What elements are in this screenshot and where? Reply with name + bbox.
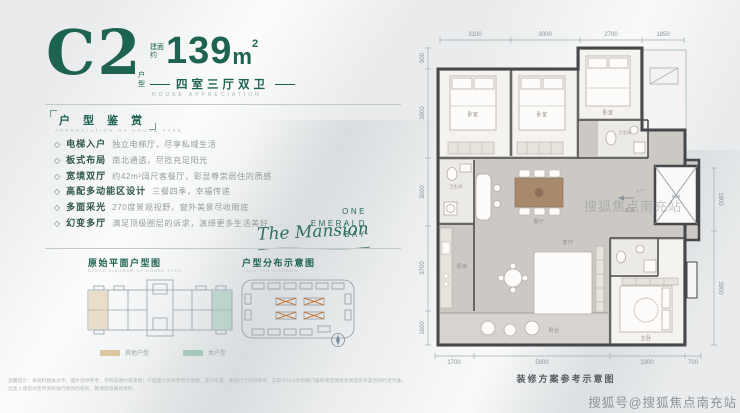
- dim-label: 1600: [420, 321, 426, 335]
- feature-item: ◇ 宽境双厅 约42m²阔尺客餐厅，彰显尊崇居住的质感: [54, 169, 404, 185]
- room-label-dining: 餐厅: [533, 218, 544, 225]
- area-value: 139: [166, 32, 232, 70]
- layout-label: 四室三厅双卫: [176, 76, 269, 92]
- feature-label: 高配多动能区设计: [66, 184, 146, 197]
- room-label-bedroom: 卧室: [536, 111, 547, 118]
- dim-label: 1850: [656, 32, 670, 38]
- distribution-diagram: [238, 274, 368, 352]
- unit-code-suffix: 户型: [138, 72, 148, 90]
- diamond-bullet-icon: ◇: [54, 156, 60, 165]
- disclaimer: 温馨提示：本资料相关文字、图片仅供参考，不构成要约或承诺；户型图为装修参考示意图…: [8, 378, 478, 393]
- room-label-bedroom: 卧室: [467, 111, 478, 118]
- diamond-bullet-icon: ◇: [54, 140, 60, 149]
- feature-desc: 满足顶级圈层的诉求，演绎更多生活美好: [112, 217, 268, 229]
- diamond-bullet-icon: ◇: [54, 219, 60, 228]
- area-prefix: 建面约: [150, 44, 166, 61]
- compass-icon: [332, 334, 345, 347]
- dim-label: 3000: [538, 32, 552, 38]
- floor-plate-subtitle: BLOCK DIAGRAM OF HOUSE TYPE: [88, 268, 182, 273]
- disclaimer-line: 出卖人保留对宣传资料进行修改的权利，敬请留意最新资料。: [8, 386, 478, 394]
- feature-item: ◇ 板式布局 南北通透，尽揽充足阳光: [54, 153, 404, 169]
- diamond-bullet-icon: ◇: [54, 203, 60, 212]
- room-label-living: 客厅: [562, 239, 573, 246]
- room-label-balcony: 阳台: [548, 327, 559, 334]
- room-label-bath: 卫生间: [449, 183, 463, 189]
- legend-swatch-this: [183, 350, 203, 356]
- feature-desc: 南北通透，尽揽充足阳光: [112, 154, 208, 166]
- room-label-master: 主卧: [640, 335, 651, 342]
- diamond-bullet-icon: ◇: [54, 187, 60, 196]
- feature-item: ◇ 高配多动能区设计 三餐四季，幸福传递: [54, 184, 404, 200]
- feature-label: 幻变多厅: [66, 216, 106, 229]
- feature-desc: 270度景观视野，窗外美景尽收眼底: [112, 201, 249, 213]
- dim-label: 1800: [717, 192, 723, 206]
- diamond-bullet-icon: ◇: [54, 172, 60, 181]
- feature-label: 板式布局: [66, 153, 106, 166]
- feature-label: 宽境双厅: [66, 169, 106, 182]
- dim-label: 1700: [447, 360, 461, 366]
- publisher-credit: 搜狐号@搜狐焦点南充站: [588, 392, 737, 411]
- feature-desc: 三餐四季，幸福传递: [152, 185, 230, 197]
- dim-label: 3100: [468, 32, 482, 38]
- room-label-kitchen: 厨房: [456, 263, 467, 270]
- dim-label: 5900: [535, 360, 549, 366]
- feature-item: ◇ 电梯入户 独立电梯厅，尽享私域生活: [54, 137, 404, 153]
- feature-desc: 独立电梯厅，尽享私域生活: [112, 138, 216, 150]
- section-subtitle: APPRECIATION OF HOUSE TYPE: [55, 128, 183, 133]
- legend-item-this: 本户型: [183, 348, 226, 357]
- feature-desc: 约42m²阔尺客餐厅，彰显尊崇居住的质感: [112, 170, 272, 182]
- distribution-subtitle: LOCATION DIAGRAM: [242, 268, 298, 273]
- section-title: 户 型 鉴 赏: [54, 112, 152, 128]
- plan-caption: 装修方案参考示意图: [498, 372, 634, 385]
- area-exponent: 2: [252, 38, 258, 50]
- legend-label: 其他户型: [125, 348, 149, 357]
- feature-label: 多面采光: [66, 200, 106, 213]
- dim-label: 3900: [420, 106, 426, 120]
- dim-label: 3700: [420, 261, 426, 275]
- dim-label: 3300: [640, 360, 654, 366]
- area-block: 建面约 139 m 2: [150, 32, 258, 70]
- dim-label: 900: [420, 52, 426, 63]
- page: C2 户型 建面约 139 m 2 四室三厅双卫 HOUSE APPRECIAT…: [0, 0, 740, 413]
- layout-row: 四室三厅双卫: [150, 76, 295, 92]
- layout-subtitle: HOUSE APPRECIATION: [152, 92, 262, 98]
- dim-label: 2700: [604, 32, 618, 38]
- dim-label: 3900: [717, 281, 723, 295]
- legend-swatch-other: [100, 350, 120, 356]
- feature-label: 电梯入户: [66, 137, 106, 150]
- legend-label: 本户型: [208, 348, 226, 357]
- legend-item-other: 其他户型: [100, 348, 149, 357]
- dim-label: 3000: [420, 185, 426, 199]
- floorplan: 3100 3000 2700 1850 900 3900 3000 3700 1…: [418, 10, 738, 372]
- area-unit: m: [232, 44, 252, 70]
- divider: [45, 248, 401, 249]
- divider: [45, 104, 401, 105]
- entry-arrow-label: 入户: [636, 187, 644, 194]
- brand-line: ONE: [283, 206, 367, 218]
- dim-label: 700: [688, 360, 699, 366]
- floor-plate-legend: 其他户型 本户型: [100, 348, 226, 357]
- dash-left: [150, 84, 170, 85]
- room-label-bath: 卫生间: [618, 129, 632, 135]
- room-label-bedroom: 卧室: [602, 109, 613, 116]
- disclaimer-line: 温馨提示：本资料相关文字、图片仅供参考，不构成要约或承诺；户型图为装修参考示意图…: [8, 378, 478, 386]
- floor-plate-diagram: [84, 274, 236, 344]
- watermark: 搜狐焦点南充站: [584, 196, 682, 215]
- unit-code: C2: [46, 22, 143, 84]
- dash-right: [275, 84, 295, 85]
